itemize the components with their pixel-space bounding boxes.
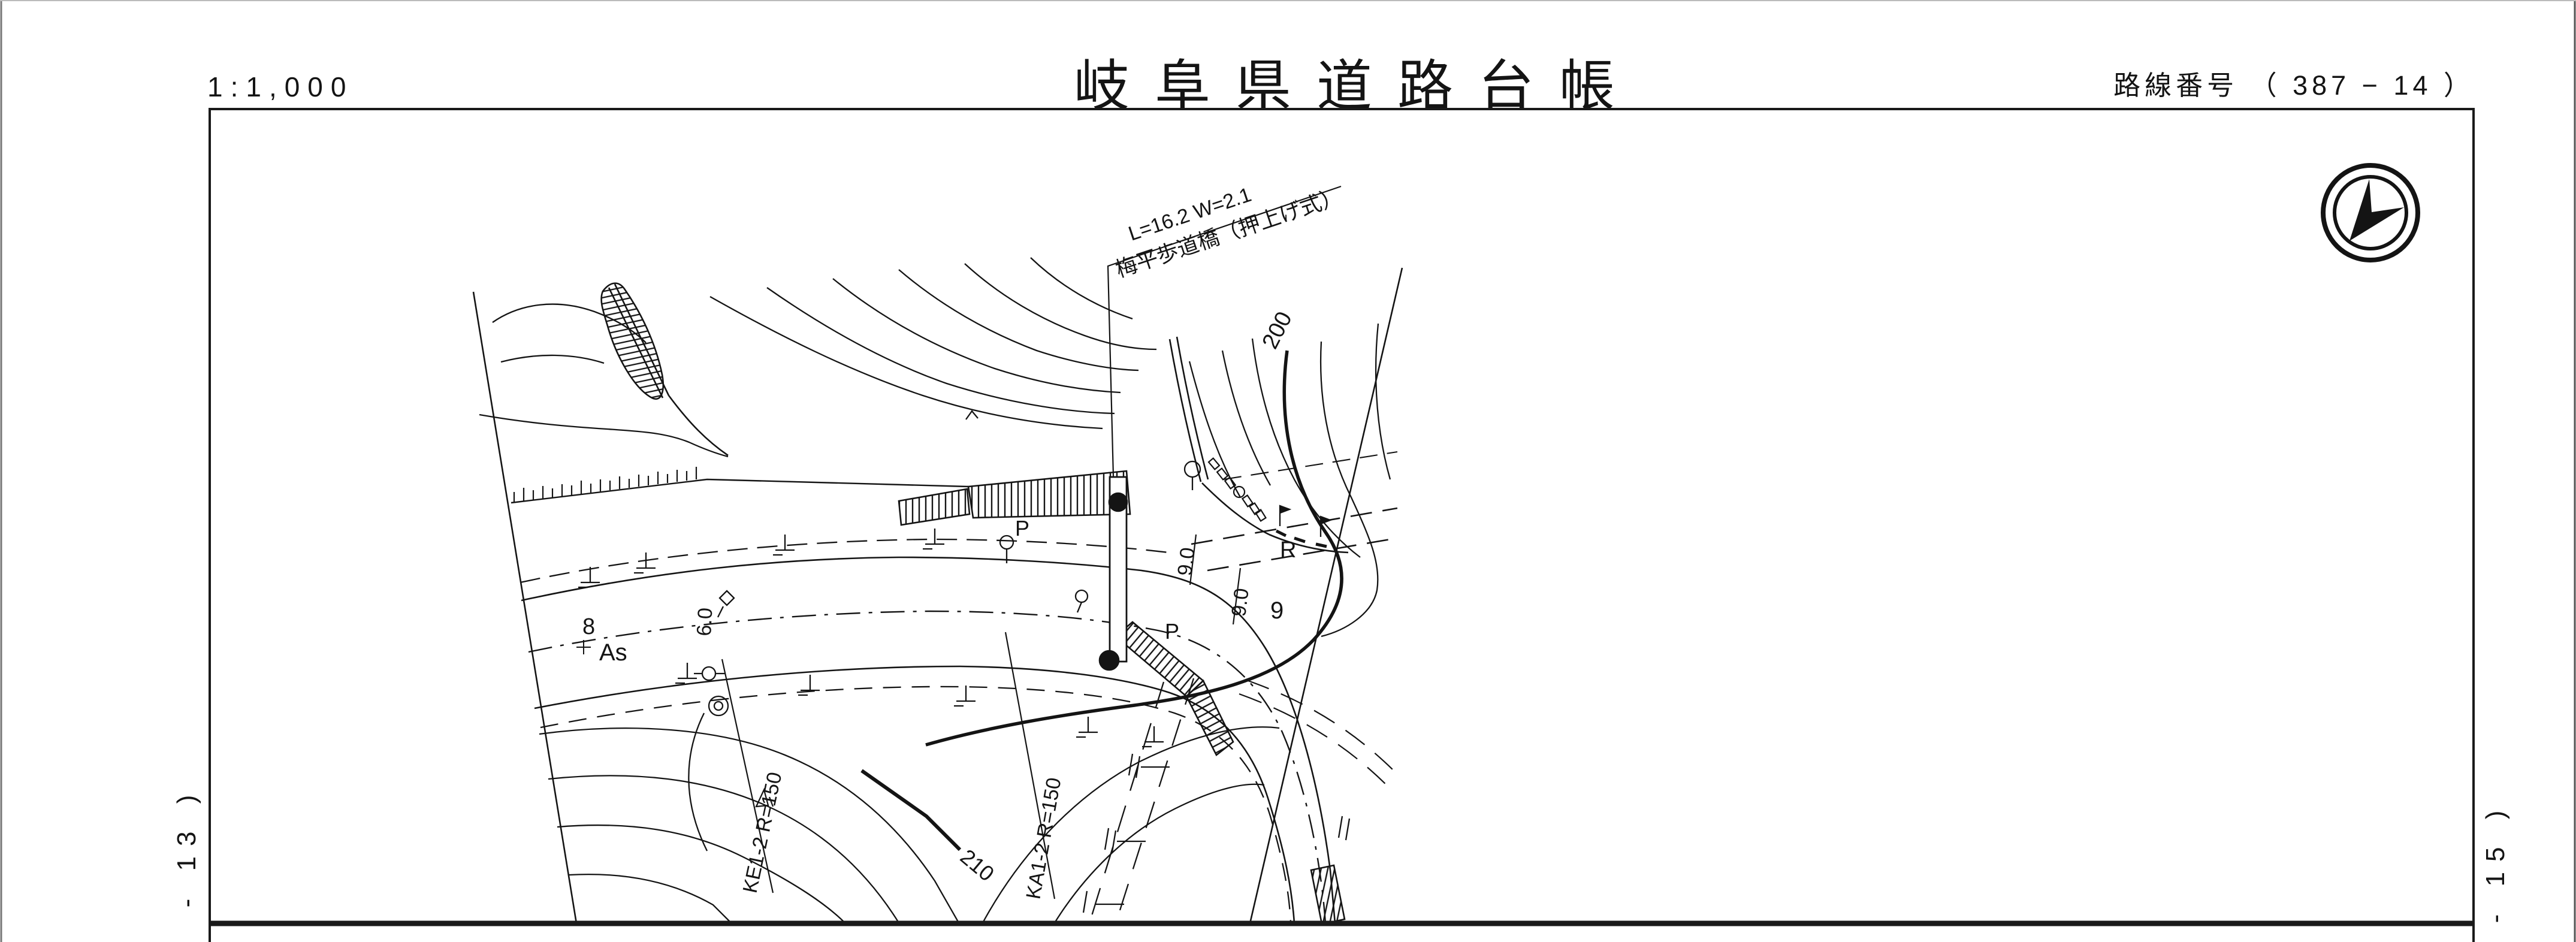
label-station-8: 8 <box>582 614 595 639</box>
flag-marker-1 <box>1280 506 1289 526</box>
bridge-pier-south <box>1100 651 1119 670</box>
label-surface-as: As <box>599 639 627 666</box>
label-radius-r: R <box>1280 538 1296 563</box>
road-ledger-sheet: { "colors": { "ink": "#141414", "paper":… <box>0 0 2576 942</box>
index-contour-200 <box>926 351 1342 745</box>
index-contour-210 <box>862 771 960 850</box>
map-labels: L=16.2 W=2.1 梅平歩道橋（押上げ式） 200 210 KE1-2 R… <box>582 183 1345 901</box>
main-road <box>511 452 1397 923</box>
map-canvas: L=16.2 W=2.1 梅平歩道橋（押上げ式） 200 210 KE1-2 R… <box>0 0 2576 942</box>
stairway-hatches <box>1116 622 1345 924</box>
page-edges <box>0 0 2576 942</box>
label-station-9: 9 <box>1270 597 1284 624</box>
label-width-6: 6.0 <box>693 607 717 636</box>
contour-lines-upper-left <box>479 258 1156 457</box>
label-curve-ka: KA1-2 R=150 <box>1022 776 1065 901</box>
road-centerline <box>529 611 1325 923</box>
north-arrow-icon <box>2323 165 2418 260</box>
label-pole-p1: P <box>1015 516 1029 541</box>
retaining-wall <box>899 471 1130 525</box>
label-width-9b: 9.0 <box>1227 587 1253 618</box>
label-contour-210: 210 <box>956 844 999 886</box>
map-drawing: L=16.2 W=2.1 梅平歩道橋（押上げ式） 200 210 KE1-2 R… <box>473 183 1402 924</box>
contour-lines-lower <box>539 713 1279 923</box>
label-contour-200: 200 <box>1258 308 1297 354</box>
label-pole-p2: P <box>1165 619 1179 644</box>
bridge-pier-north <box>1109 493 1127 511</box>
guardrail-chain <box>1209 458 1266 521</box>
label-width-9a: 9.0 <box>1173 546 1199 577</box>
marker-diamond <box>718 591 734 617</box>
alignment-lines <box>722 632 1055 899</box>
